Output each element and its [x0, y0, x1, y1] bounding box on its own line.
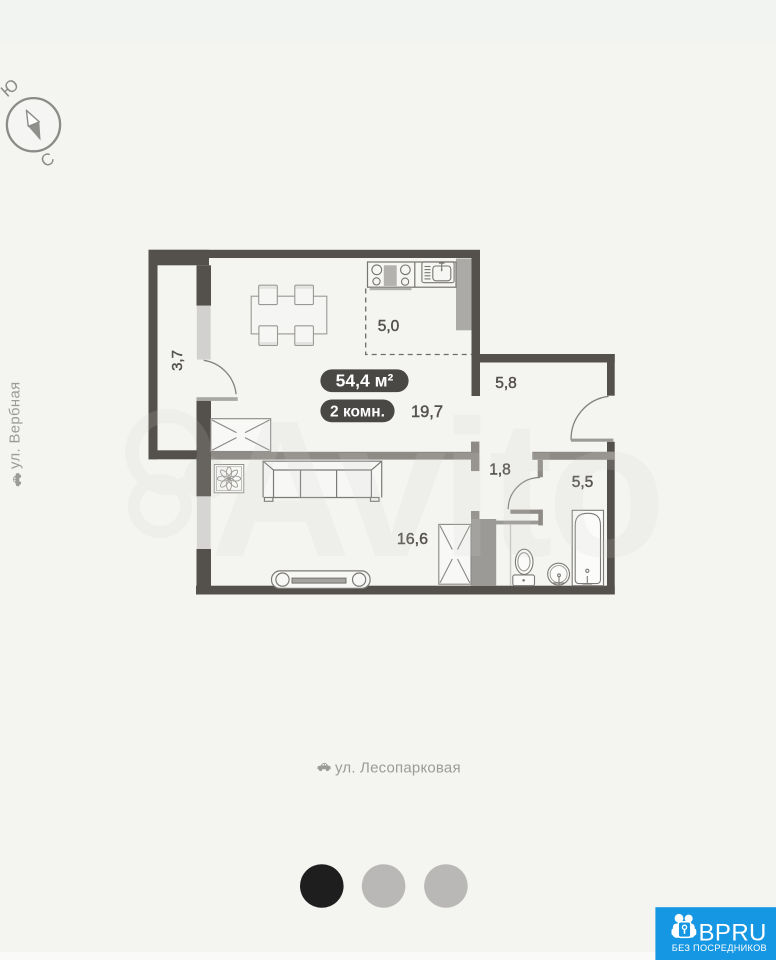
- svg-text:ул. Лесопарковая: ул. Лесопарковая: [335, 760, 461, 777]
- svg-text:ул. Вербная: ул. Вербная: [8, 381, 24, 469]
- svg-text:Avito: Avito: [210, 380, 660, 598]
- svg-text:3,7: 3,7: [169, 350, 186, 371]
- svg-text:БЕЗ ПОСРЕДНИКОВ: БЕЗ ПОСРЕДНИКОВ: [672, 943, 767, 953]
- svg-text:5,0: 5,0: [378, 318, 400, 335]
